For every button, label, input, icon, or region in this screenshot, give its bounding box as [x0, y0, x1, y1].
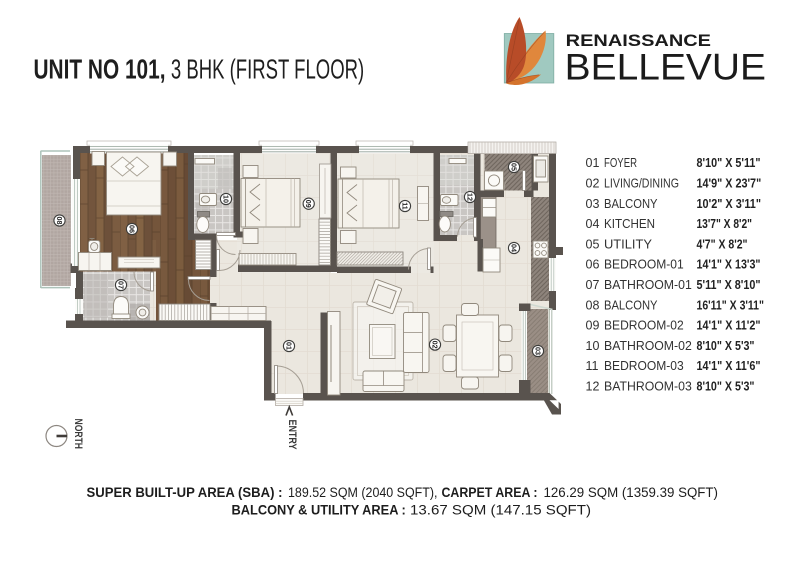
svg-text:10'2" X 3'11": 10'2" X 3'11" [697, 197, 762, 211]
svg-text:ENTRY: ENTRY [286, 420, 298, 451]
svg-text:08: 08 [586, 298, 600, 312]
svg-text:05: 05 [509, 163, 518, 171]
svg-text:3 BHK (FIRST FLOOR): 3 BHK (FIRST FLOOR) [171, 53, 364, 84]
svg-text:03: 03 [533, 347, 542, 355]
svg-text:8'10" X 5'3": 8'10" X 5'3" [697, 339, 755, 353]
svg-text:BALCONY & UTILITY AREA :: BALCONY & UTILITY AREA : [232, 503, 406, 518]
svg-text:BATHROOM-03: BATHROOM-03 [604, 380, 692, 394]
svg-text:09: 09 [304, 200, 313, 208]
svg-text:06: 06 [127, 225, 136, 233]
svg-text:5'11" X 8'10": 5'11" X 8'10" [697, 278, 761, 292]
svg-text:BEDROOM-03: BEDROOM-03 [604, 359, 684, 373]
svg-text:12: 12 [465, 193, 474, 201]
svg-text:BATHROOM-01: BATHROOM-01 [604, 278, 692, 292]
svg-text:11: 11 [400, 202, 409, 210]
svg-text:10: 10 [221, 195, 230, 203]
svg-text:BATHROOM-02: BATHROOM-02 [604, 339, 692, 353]
svg-text:BELLEVUE: BELLEVUE [565, 47, 766, 88]
svg-text:04: 04 [586, 217, 600, 231]
svg-text:14'9" X 23'7": 14'9" X 23'7" [697, 177, 762, 191]
svg-text:03: 03 [586, 197, 600, 211]
svg-text:189.52 SQM (2040 SQFT),: 189.52 SQM (2040 SQFT), [288, 485, 438, 500]
svg-text:12: 12 [586, 380, 600, 394]
svg-text:4'7" X 8'2": 4'7" X 8'2" [697, 237, 748, 251]
svg-text:UTILITY: UTILITY [604, 237, 653, 251]
svg-text:BALCONY: BALCONY [604, 197, 658, 211]
svg-text:16'11" X 3'11": 16'11" X 3'11" [697, 298, 765, 312]
svg-text:SUPER BUILT-UP AREA (SBA) :: SUPER BUILT-UP AREA (SBA) : [87, 485, 283, 500]
svg-text:UNIT NO 101,: UNIT NO 101, [34, 53, 166, 84]
svg-text:06: 06 [586, 258, 600, 272]
svg-text:KITCHEN: KITCHEN [604, 217, 655, 231]
svg-text:10: 10 [586, 339, 600, 353]
svg-text:07: 07 [586, 278, 600, 292]
svg-text:08: 08 [55, 217, 64, 225]
svg-text:BEDROOM-01: BEDROOM-01 [604, 258, 684, 272]
svg-text:02: 02 [430, 341, 439, 349]
svg-text:01: 01 [284, 342, 293, 350]
svg-text:04: 04 [509, 244, 518, 252]
svg-text:14'1" X 11'6": 14'1" X 11'6" [697, 359, 761, 373]
svg-text:13.67 SQM (147.15 SQFT): 13.67 SQM (147.15 SQFT) [410, 503, 591, 518]
svg-text:11: 11 [586, 359, 599, 373]
svg-text:02: 02 [586, 177, 600, 191]
svg-text:14'1" X 13'3": 14'1" X 13'3" [697, 258, 761, 272]
svg-text:8'10" X 5'3": 8'10" X 5'3" [697, 380, 755, 394]
svg-text:BALCONY: BALCONY [604, 298, 658, 312]
svg-text:LIVING/DINING: LIVING/DINING [604, 177, 679, 191]
svg-text:05: 05 [586, 237, 600, 251]
svg-text:09: 09 [586, 319, 600, 333]
svg-text:07: 07 [116, 281, 125, 289]
svg-text:CARPET AREA :: CARPET AREA : [442, 485, 538, 500]
svg-text:13'7" X 8'2": 13'7" X 8'2" [697, 217, 753, 231]
svg-text:14'1" X 11'2": 14'1" X 11'2" [697, 319, 761, 333]
svg-text:FOYER: FOYER [604, 156, 637, 170]
svg-text:8'10" X 5'11": 8'10" X 5'11" [697, 156, 761, 170]
svg-text:01: 01 [586, 156, 600, 170]
svg-text:NORTH: NORTH [72, 419, 84, 450]
svg-text:BEDROOM-02: BEDROOM-02 [604, 319, 684, 333]
svg-text:126.29 SQM (1359.39 SQFT): 126.29 SQM (1359.39 SQFT) [544, 485, 719, 500]
